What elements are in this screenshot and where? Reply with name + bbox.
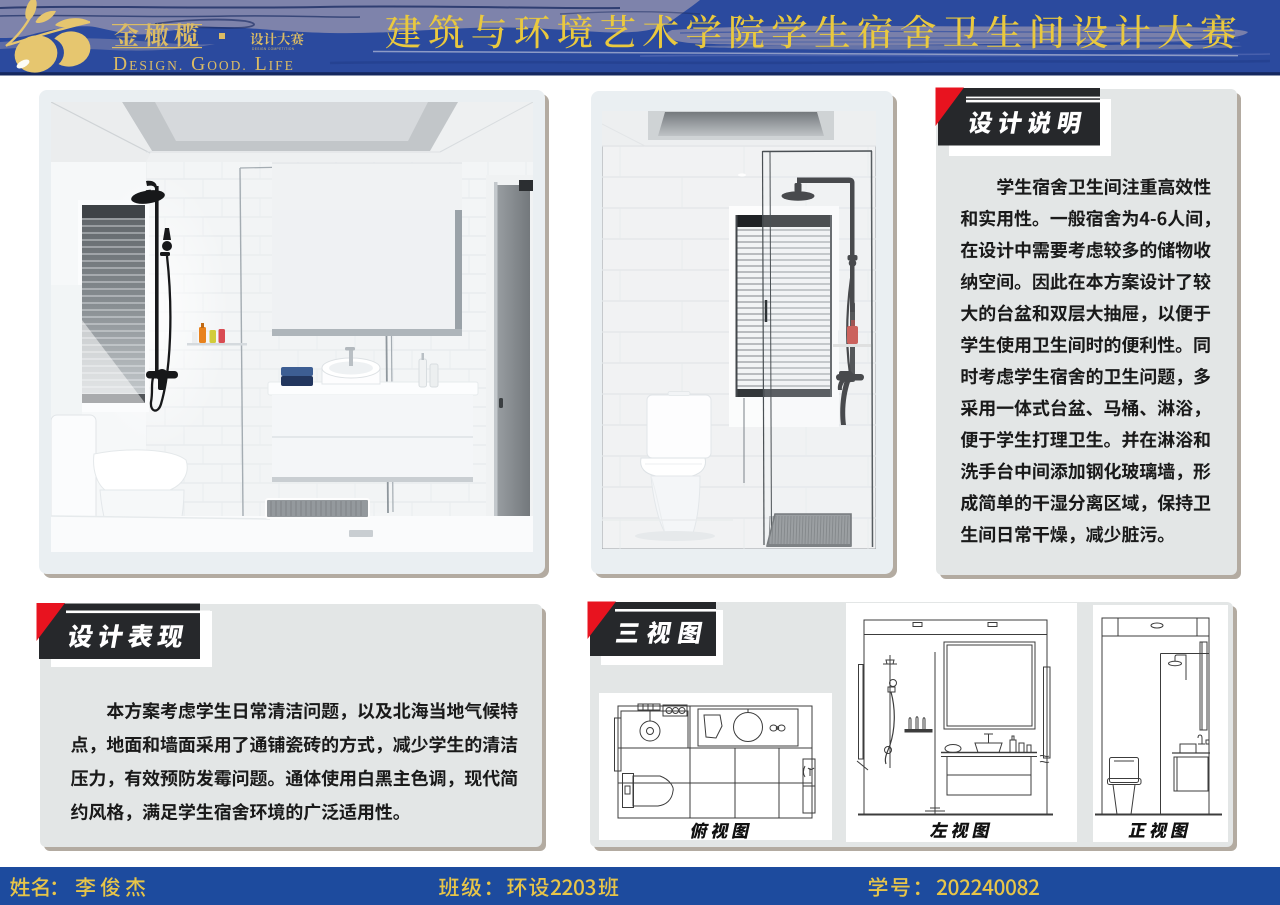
svg-text:DESIGN COMPETITION: DESIGN COMPETITION	[252, 47, 295, 51]
svg-text:DESIGN. GOOD. LIFE: DESIGN. GOOD. LIFE	[113, 54, 295, 75]
